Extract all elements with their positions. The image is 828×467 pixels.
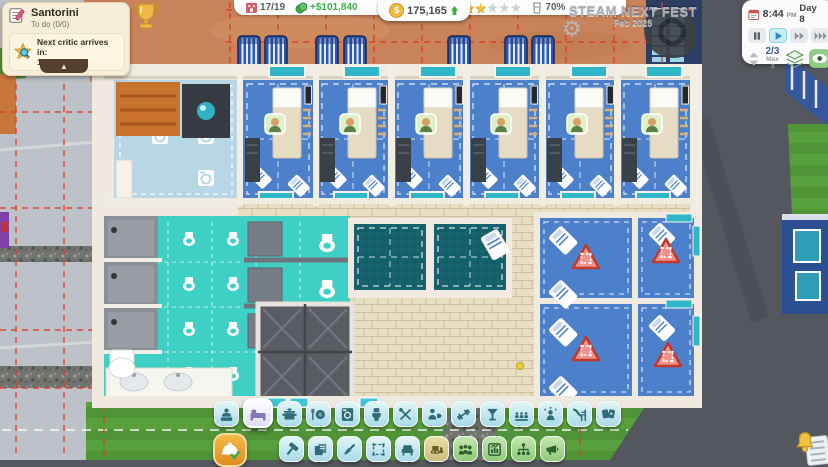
collapse-objectives-button[interactable]: ▲ <box>40 59 88 73</box>
hotel-building[interactable] <box>92 64 702 408</box>
pause-button[interactable] <box>748 28 766 43</box>
notifications-widget[interactable] <box>795 429 828 467</box>
rooms-value: 17/19 <box>260 2 285 13</box>
income-icon <box>295 2 307 14</box>
play-button[interactable] <box>769 28 787 43</box>
tool-entertainment-button[interactable] <box>538 401 563 427</box>
elevator-floor[interactable] <box>258 304 352 400</box>
satisfaction-value: 70% <box>545 2 565 13</box>
tool-finances-button[interactable] <box>482 436 507 462</box>
floor-up-down-icons[interactable] <box>748 51 760 67</box>
notification-bell-icon[interactable] <box>795 431 815 453</box>
critic-notice-line1: Next critic arrives in: <box>37 37 121 57</box>
tool-pool-button[interactable] <box>567 401 592 427</box>
visibility-eye-icon[interactable] <box>809 49 828 68</box>
star-icon: ★ <box>487 1 499 15</box>
fastest-forward-button[interactable] <box>811 28 828 43</box>
tool-staff-button[interactable] <box>453 436 478 462</box>
floor-indicator: 2/3 <box>764 47 782 56</box>
money-value: 175,165 <box>407 5 447 17</box>
tool-restaurant-button[interactable] <box>306 401 331 427</box>
clock-time: 8:44 <box>763 8 784 20</box>
income-counter[interactable]: +$101,840 <box>295 2 358 14</box>
tool-confirm-build-button[interactable] <box>213 433 247 467</box>
tool-management-button[interactable] <box>511 436 536 462</box>
star-icon: ★ <box>475 1 487 15</box>
satisfaction-icon <box>532 2 542 14</box>
critic-star-icon <box>13 42 33 62</box>
fast-forward-button[interactable] <box>790 28 808 43</box>
floor-layers-icon[interactable] <box>785 50 804 68</box>
coin-icon: $ <box>389 3 404 18</box>
tool-cinema-button[interactable] <box>509 401 534 427</box>
star-icon: ★ <box>511 1 523 15</box>
bedroom-5 <box>545 66 615 201</box>
floor-max-label: Max 3 <box>764 56 782 70</box>
todo-list-icon <box>9 7 26 24</box>
tool-kitchen-button[interactable] <box>277 401 302 427</box>
bedroom-3 <box>394 66 464 201</box>
shower-stalls <box>104 216 162 352</box>
centre-room-1[interactable] <box>348 218 432 298</box>
rooms-counter[interactable]: 17/19 <box>246 2 285 13</box>
star-icon: ★ <box>499 1 511 15</box>
bedroom-1 <box>243 66 313 201</box>
income-value: +$101,840 <box>310 2 358 13</box>
trophy-icon[interactable] <box>131 1 161 33</box>
game-speed-controls <box>748 28 828 43</box>
laundry-room[interactable] <box>114 80 238 200</box>
tool-toilets-button[interactable] <box>364 401 389 427</box>
calendar-icon <box>748 8 760 21</box>
bedroom-4 <box>469 66 539 201</box>
star-rating[interactable]: ★★★★★ <box>464 2 523 14</box>
tool-reception-button[interactable] <box>214 401 239 427</box>
tool-demolish-button[interactable] <box>424 436 449 462</box>
rooms-icon <box>246 2 257 13</box>
tool-zone-select-button[interactable] <box>366 436 391 462</box>
satisfaction-counter[interactable]: 70% <box>532 2 565 14</box>
todo-count: To do (0/0) <box>31 20 79 29</box>
tool-bar-button[interactable] <box>480 401 505 427</box>
hotel-name: Santorini <box>31 7 79 19</box>
neighbor-building-right <box>782 214 828 314</box>
room-tools-toolbar <box>214 401 621 428</box>
day-counter: Day 8 <box>799 3 822 25</box>
tool-workshop-button[interactable] <box>393 401 418 427</box>
centre-room-2[interactable] <box>428 218 512 298</box>
bedroom-6 <box>620 66 690 201</box>
tool-casino-button[interactable] <box>596 401 621 427</box>
tool-bedroom-button[interactable] <box>243 398 273 428</box>
tool-gym-button[interactable] <box>451 401 476 427</box>
clock-panel: 8:44 PM Day 8 2/3 Max 3 <box>742 0 828 64</box>
tool-staff-room-button[interactable] <box>422 401 447 427</box>
tool-blueprints-button[interactable] <box>308 436 333 462</box>
money-trend-up-icon <box>450 5 459 16</box>
tool-paint-button[interactable] <box>337 436 362 462</box>
money-display[interactable]: $ 175,165 <box>378 0 470 21</box>
tool-laundry-button[interactable] <box>335 401 360 427</box>
tool-hammer-button[interactable] <box>279 436 304 462</box>
build-tools-toolbar <box>213 436 565 467</box>
clock-meridiem: PM <box>787 12 797 19</box>
incomplete-rooms[interactable] <box>534 212 700 405</box>
tool-marketing-button[interactable] <box>540 436 565 462</box>
tool-furniture-button[interactable] <box>395 436 420 462</box>
bedroom-2 <box>318 66 388 201</box>
